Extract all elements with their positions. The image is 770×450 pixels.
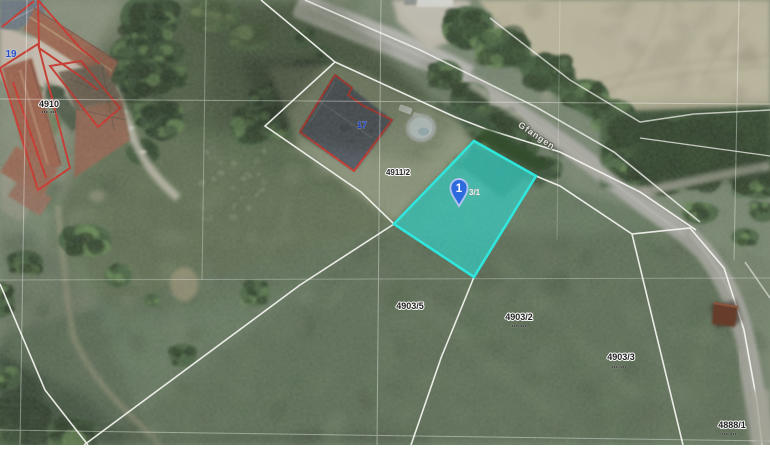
svg-text:3/1: 3/1 bbox=[469, 188, 481, 197]
svg-text:4903/2: 4903/2 bbox=[505, 312, 533, 322]
svg-text:4903/5: 4903/5 bbox=[396, 301, 424, 311]
svg-text:4888/1: 4888/1 bbox=[718, 420, 746, 430]
svg-text:17: 17 bbox=[357, 120, 367, 130]
svg-text:4903/3: 4903/3 bbox=[607, 352, 635, 362]
svg-text:4910: 4910 bbox=[39, 99, 59, 109]
svg-text:4911/2: 4911/2 bbox=[386, 168, 411, 177]
svg-text:19: 19 bbox=[5, 49, 17, 60]
svg-text:1: 1 bbox=[456, 183, 463, 195]
